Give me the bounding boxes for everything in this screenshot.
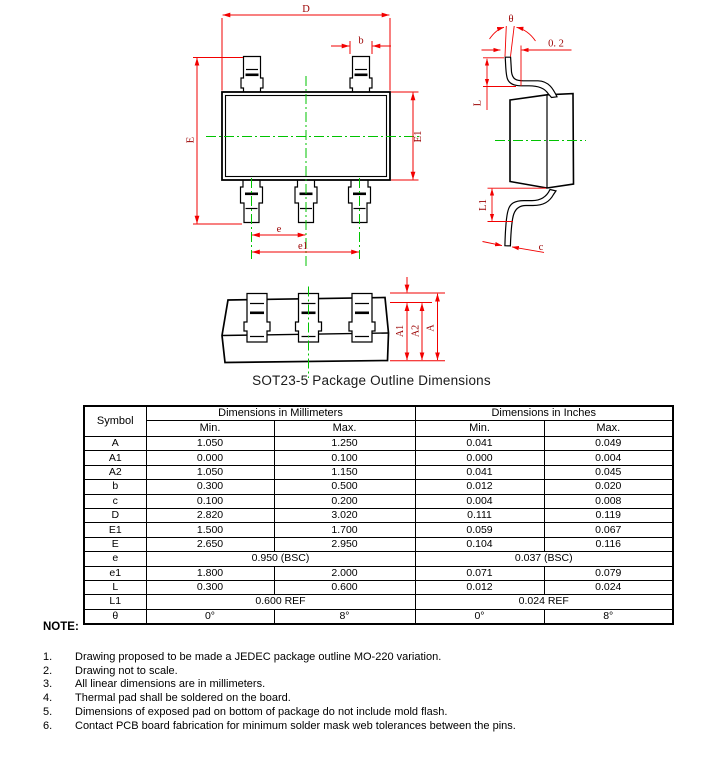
note-text: Thermal pad shall be soldered on the boa… (75, 692, 703, 706)
side-view: θ 0. 2 L L1 c (473, 14, 587, 253)
table-row: A1.0501.2500.0410.049 (84, 437, 673, 451)
datasheet-page: D b E E1 e e1 (0, 0, 727, 759)
lead-top-side (505, 57, 557, 97)
package-outline-drawing: D b E E1 e e1 (0, 0, 727, 400)
front-view: A1 A2 A (222, 277, 445, 378)
dim-label-D: D (302, 4, 310, 15)
note-item: 6. Contact PCB board fabrication for min… (43, 720, 703, 734)
table-row: E2.6502.9500.1040.116 (84, 537, 673, 551)
col-header-symbol: Symbol (84, 406, 146, 437)
dim-label-gap: 0. 2 (548, 39, 564, 50)
dim-label-e1: e1 (298, 241, 308, 252)
dim-label-L: L (473, 100, 484, 106)
col-header-in-min: Min. (415, 421, 544, 437)
table-row: L0.3000.6000.0120.024 (84, 580, 673, 594)
dim-label-E: E (186, 137, 197, 143)
dim-label-b: b (358, 36, 363, 47)
lead-bottom-side (505, 190, 556, 246)
dim-label-L1: L1 (478, 199, 489, 211)
col-header-inch: Dimensions in Inches (415, 406, 673, 421)
table-row: A10.0000.1000.0000.004 (84, 451, 673, 465)
note-text: All linear dimensions are in millimeters… (75, 678, 703, 692)
note-number: 4. (43, 692, 75, 706)
table-header-row-groups: Symbol Dimensions in Millimeters Dimensi… (84, 406, 673, 421)
table-row: A21.0501.1500.0410.045 (84, 465, 673, 479)
dim-label-A2: A2 (411, 325, 422, 337)
dim-label-c: c (539, 242, 544, 253)
note-text: Contact PCB board fabrication for minimu… (75, 720, 703, 734)
note-item: 1. Drawing proposed to be made a JEDEC p… (43, 651, 703, 665)
dim-label-A: A (426, 324, 437, 332)
note-number: 2. (43, 665, 75, 679)
dim-label-theta: θ (508, 14, 513, 25)
col-header-mm: Dimensions in Millimeters (146, 406, 415, 421)
table-header-row-minmax: Min. Max. Min. Max. (84, 421, 673, 437)
note-item: 5. Dimensions of exposed pad on bottom o… (43, 706, 703, 720)
note-text: Drawing proposed to be made a JEDEC pack… (75, 651, 703, 665)
table-row: D2.8203.0200.1110.119 (84, 508, 673, 522)
dim-label-A1: A1 (395, 325, 406, 337)
top-view: D b E E1 e e1 (186, 4, 425, 268)
table-row: E11.5001.7000.0590.067 (84, 523, 673, 537)
note-number: 6. (43, 720, 75, 734)
dim-label-E1: E1 (413, 131, 424, 143)
col-header-mm-min: Min. (146, 421, 274, 437)
notes-heading: NOTE: (43, 621, 703, 633)
note-item: 3. All linear dimensions are in millimet… (43, 678, 703, 692)
note-item: 4. Thermal pad shall be soldered on the … (43, 692, 703, 706)
note-number: 5. (43, 706, 75, 720)
dimensions-front-view (390, 277, 445, 361)
note-item: 2. Drawing not to scale. (43, 665, 703, 679)
note-text: Drawing not to scale. (75, 665, 703, 679)
notes-section: NOTE: 1. Drawing proposed to be made a J… (43, 621, 703, 733)
note-number: 1. (43, 651, 75, 665)
col-header-in-max: Max. (544, 421, 673, 437)
drawing-caption: SOT23-5 Package Outline Dimensions (10, 373, 727, 388)
dimension-labels-front-view: A1 A2 A (395, 324, 437, 338)
dimensions-side-view (482, 26, 572, 252)
table-row: L10.600 REF0.024 REF (84, 595, 673, 609)
col-header-mm-max: Max. (274, 421, 415, 437)
front-view-leads (244, 294, 375, 343)
note-text: Dimensions of exposed pad on bottom of p… (75, 706, 703, 720)
notes-list: 1. Drawing proposed to be made a JEDEC p… (43, 651, 703, 733)
table-row: e0.950 (BSC)0.037 (BSC) (84, 552, 673, 566)
table-row: e11.8002.0000.0710.079 (84, 566, 673, 580)
table-row: c0.1000.2000.0040.008 (84, 494, 673, 508)
dimensions-table: Symbol Dimensions in Millimeters Dimensi… (83, 405, 674, 625)
note-number: 3. (43, 678, 75, 692)
table-row: b0.3000.5000.0120.020 (84, 480, 673, 494)
dim-label-e: e (277, 224, 282, 235)
